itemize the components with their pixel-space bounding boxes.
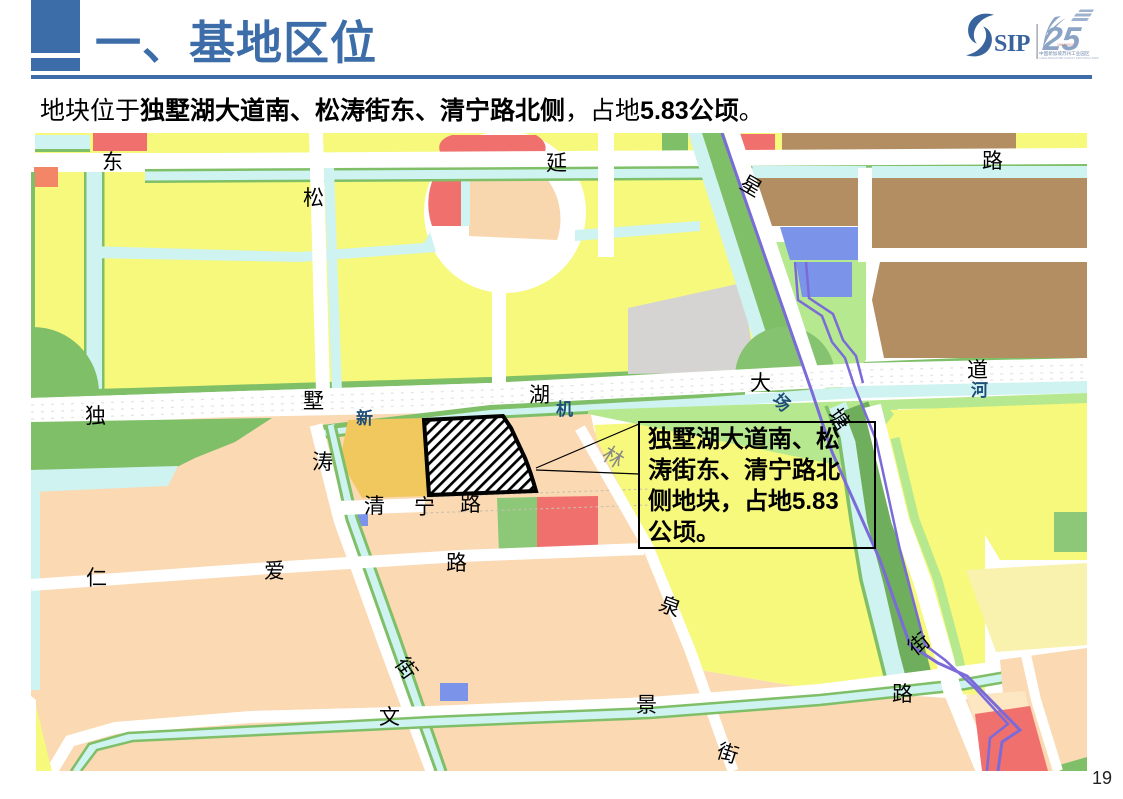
svg-text:侧地块，占地5.83: 侧地块，占地5.83 [648,487,839,515]
svg-text:公顷。: 公顷。 [648,519,720,546]
svg-text:湖: 湖 [529,384,550,407]
svg-text:文: 文 [379,706,400,729]
svg-text:独: 独 [85,405,106,428]
svg-text:道: 道 [967,359,988,382]
svg-text:涛街东、清宁路北: 涛街东、清宁路北 [648,456,840,484]
svg-text:松: 松 [303,187,324,210]
svg-text:墅: 墅 [303,390,324,413]
svg-text:河: 河 [971,381,988,400]
svg-text:独墅湖大道南、松: 独墅湖大道南、松 [648,425,840,453]
svg-text:路: 路 [460,493,481,516]
svg-text:东: 东 [102,151,123,174]
svg-text:大: 大 [750,372,771,395]
svg-text:景: 景 [636,694,657,717]
svg-text:清: 清 [364,495,385,518]
svg-text:涛: 涛 [312,451,333,474]
svg-text:机: 机 [556,399,573,419]
svg-text:仁: 仁 [86,567,107,590]
svg-text:宁: 宁 [414,496,435,519]
svg-text:爱: 爱 [264,560,285,583]
svg-text:新: 新 [356,408,373,428]
svg-text:路: 路 [892,683,913,706]
svg-text:路: 路 [982,150,1003,173]
svg-text:路: 路 [446,552,467,575]
svg-text:延: 延 [546,152,567,175]
